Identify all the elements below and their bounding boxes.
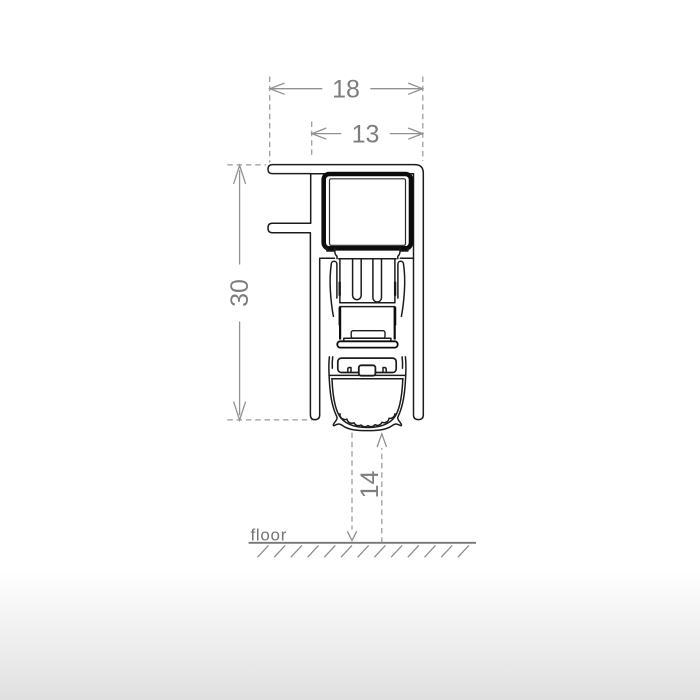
svg-text:18: 18 [332, 76, 360, 104]
svg-text:30: 30 [226, 279, 254, 307]
svg-text:floor: floor [251, 525, 288, 544]
svg-text:13: 13 [352, 121, 380, 149]
svg-text:14: 14 [356, 471, 384, 499]
